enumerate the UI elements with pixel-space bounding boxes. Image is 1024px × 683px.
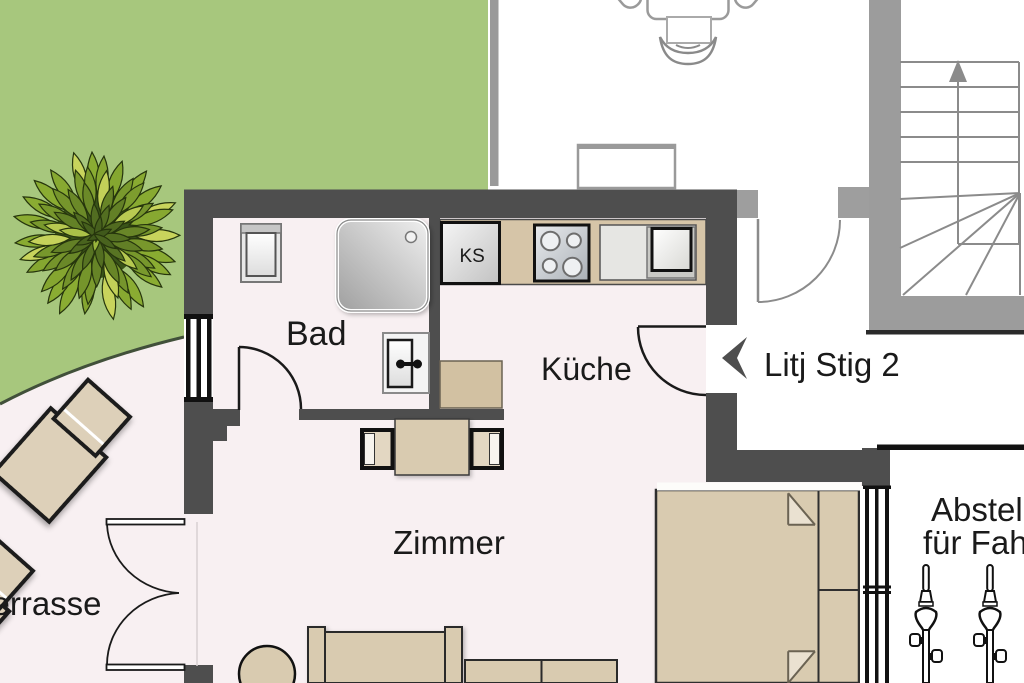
svg-text:Bad: Bad bbox=[286, 315, 347, 353]
svg-text:KS: KS bbox=[460, 246, 485, 267]
svg-text:Küche: Küche bbox=[541, 351, 632, 387]
svg-text:Zimmer: Zimmer bbox=[393, 524, 505, 561]
svg-text:Terrasse: Terrasse bbox=[0, 585, 102, 622]
svg-text:Abstellraum: Abstellraum bbox=[931, 491, 1024, 528]
svg-text:Litj Stig 2: Litj Stig 2 bbox=[764, 346, 900, 383]
svg-text:für Fahrräder: für Fahrräder bbox=[923, 524, 1024, 561]
